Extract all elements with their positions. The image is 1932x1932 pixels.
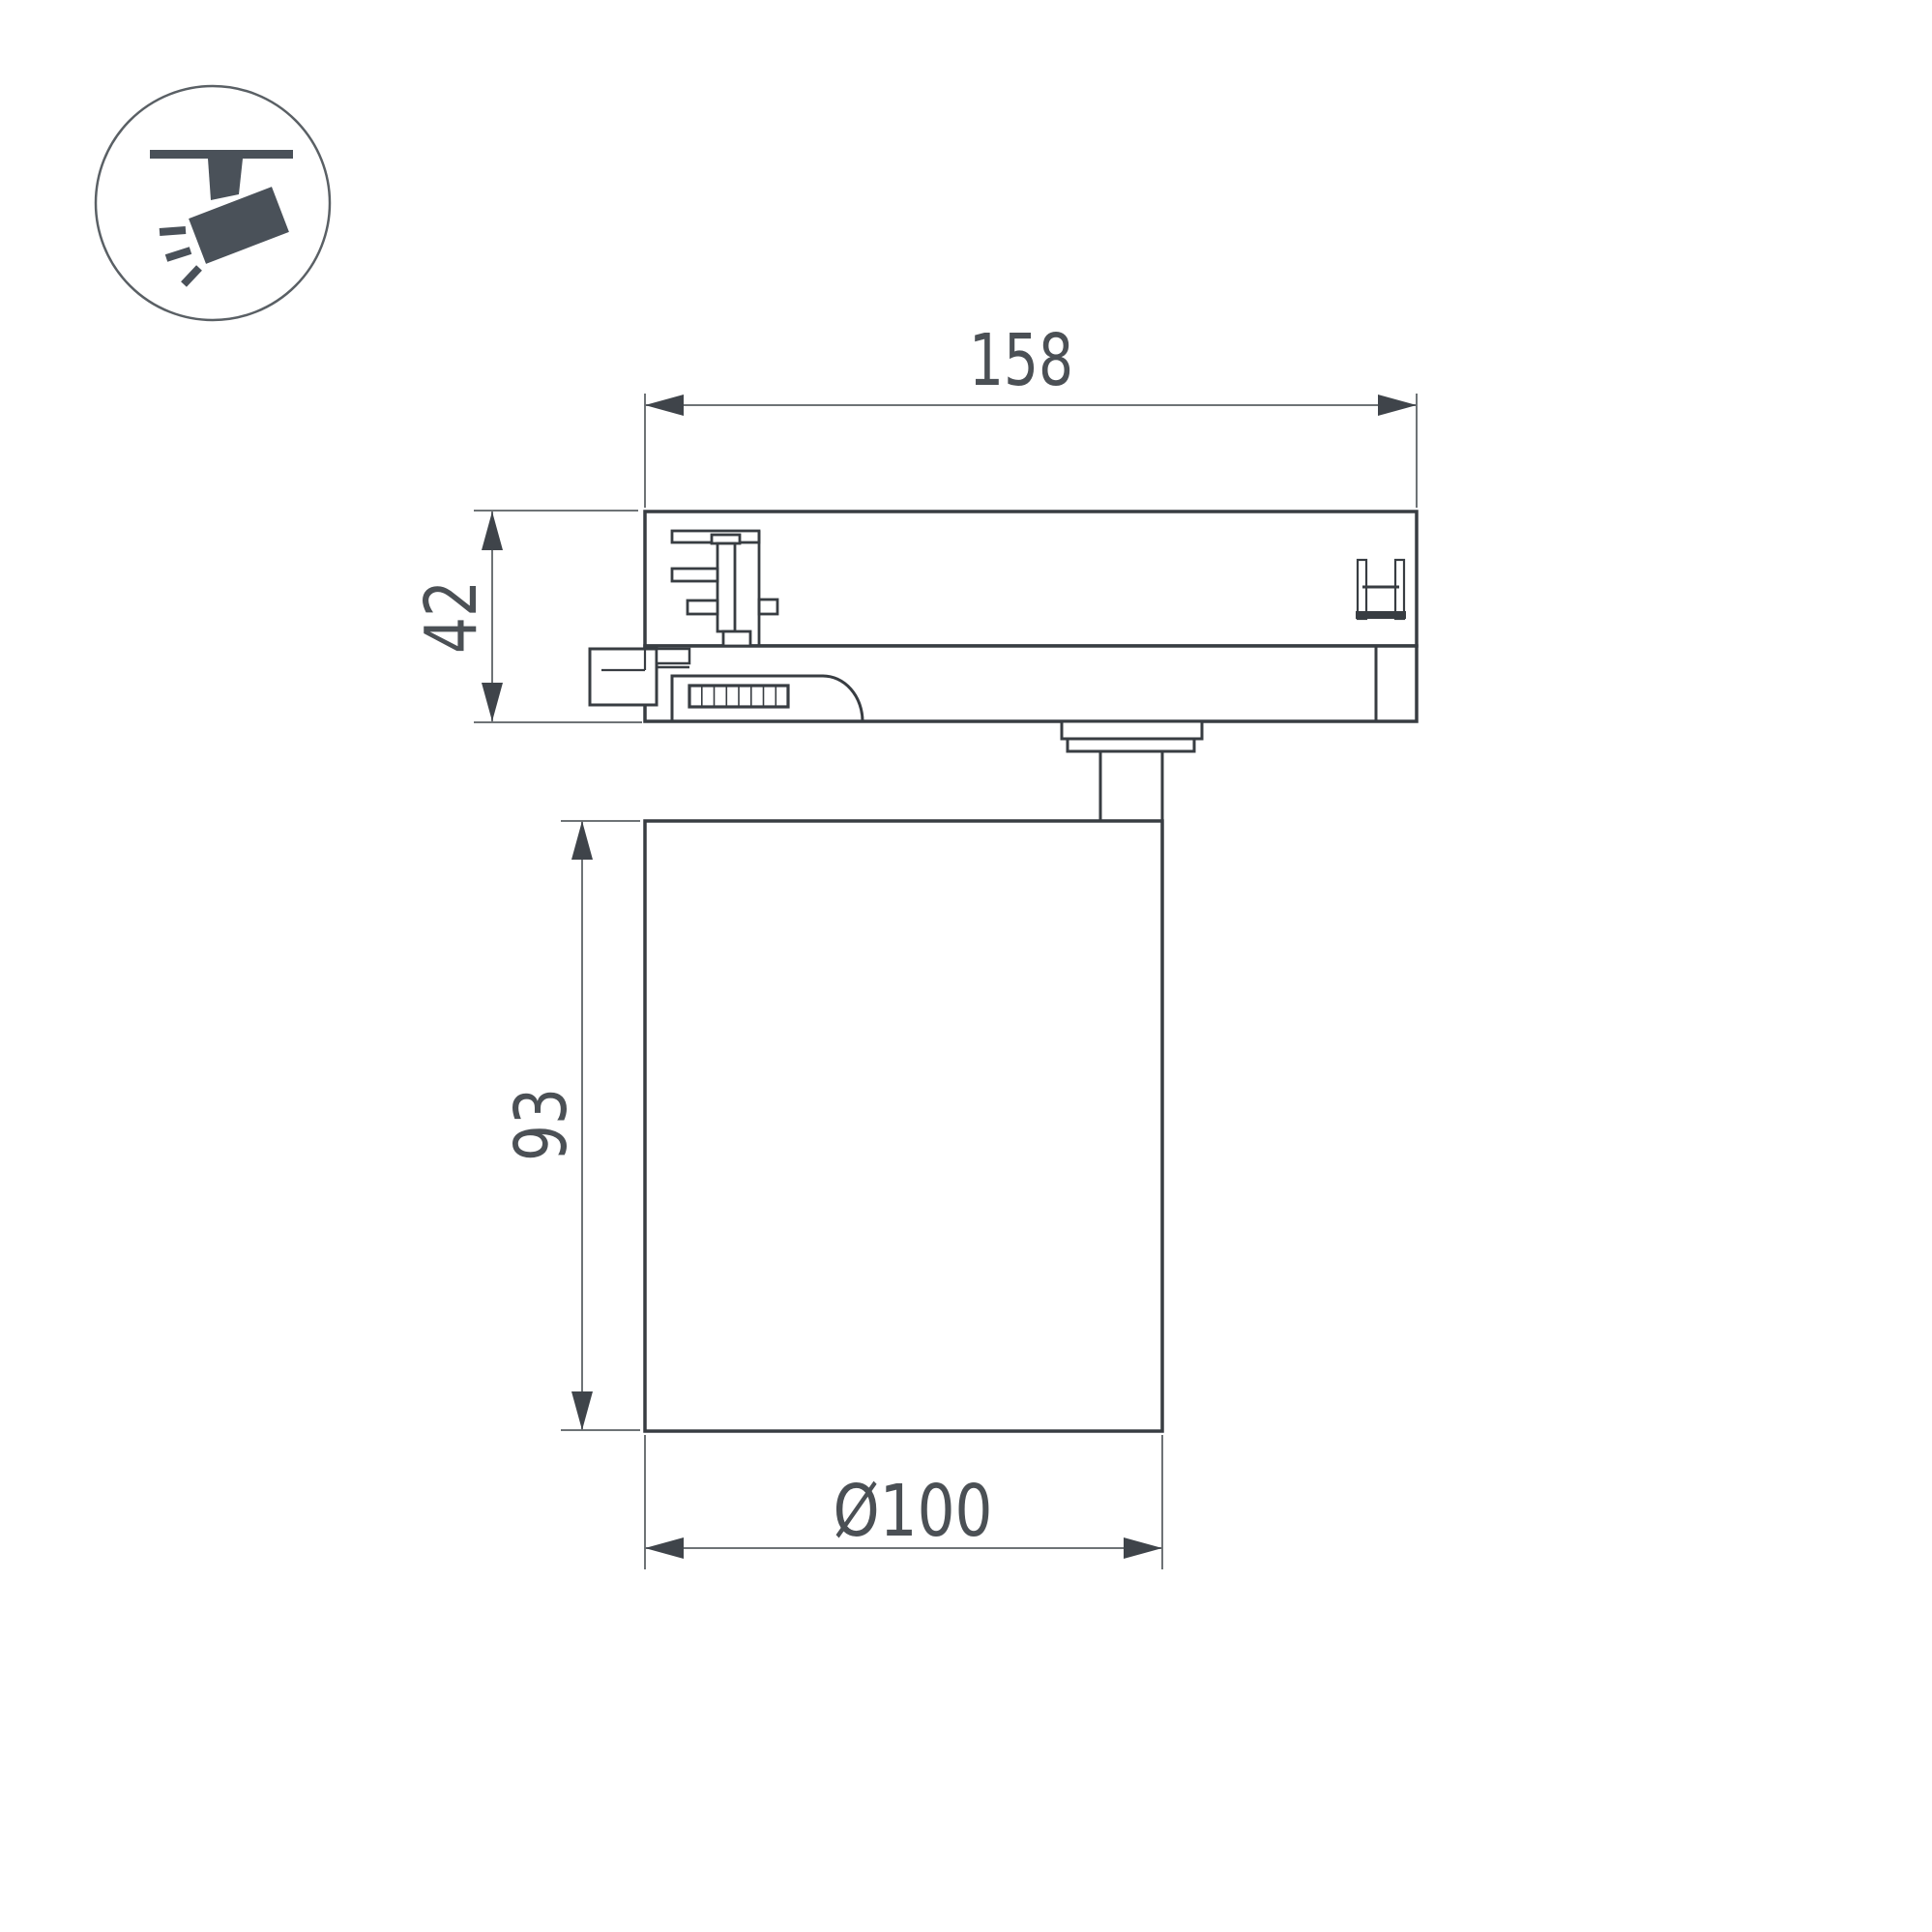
knuckle-lower-plate bbox=[1068, 739, 1194, 751]
track-spotlight-icon bbox=[96, 86, 330, 320]
fixture-outline bbox=[590, 512, 1417, 1431]
lamp-body bbox=[645, 821, 1162, 1431]
icon-stem bbox=[208, 159, 243, 200]
dimension-body-diameter: Ø100 bbox=[645, 1435, 1162, 1569]
dimension-label-body-height: 93 bbox=[500, 1088, 583, 1161]
arrowhead-top bbox=[482, 512, 503, 550]
arrowhead-right bbox=[1124, 1537, 1162, 1559]
icon-track-bar bbox=[150, 150, 293, 159]
contact-foot bbox=[723, 631, 750, 646]
contact-stem bbox=[717, 543, 735, 631]
ribbed-grip bbox=[689, 686, 788, 707]
contact-mid-prong bbox=[672, 569, 717, 581]
icon-circle-border bbox=[96, 86, 330, 320]
knuckle-upper-plate bbox=[1062, 721, 1202, 739]
arrowhead-left bbox=[645, 395, 684, 416]
arrowhead-left bbox=[645, 1537, 684, 1559]
dimension-label-diameter: Ø100 bbox=[834, 1470, 993, 1553]
contact-low-prong bbox=[688, 600, 717, 614]
arrowhead-bottom bbox=[482, 683, 503, 721]
track-adapter-housing bbox=[645, 512, 1417, 646]
contact-nub bbox=[759, 600, 777, 614]
knuckle-stem bbox=[1100, 751, 1162, 825]
track-spotlight-drawing: 158 42 93 Ø100 bbox=[0, 0, 1932, 1932]
arrowhead-top bbox=[571, 821, 593, 860]
dimension-label-width: 158 bbox=[969, 319, 1073, 402]
dimension-body-height: 93 bbox=[500, 821, 640, 1430]
clamp-notch bbox=[657, 649, 689, 663]
swivel-knuckle bbox=[1062, 721, 1202, 825]
arrowhead-right bbox=[1378, 395, 1417, 416]
technical-drawing-page: 158 42 93 Ø100 bbox=[0, 0, 1932, 1932]
dimension-label-adapter-height: 42 bbox=[410, 580, 493, 654]
adapter-lower-housing bbox=[645, 646, 1417, 721]
dimension-track-adapter-width: 158 bbox=[645, 319, 1417, 508]
arrowhead-bottom bbox=[571, 1391, 593, 1430]
